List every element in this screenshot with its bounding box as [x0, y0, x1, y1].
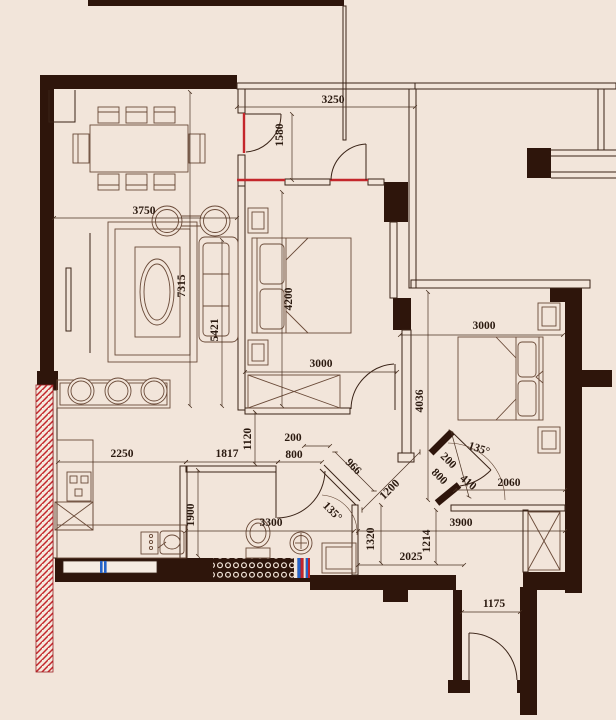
dim-bath-width: 3300 — [260, 517, 283, 529]
radiator — [66, 268, 71, 331]
kitchen-window — [63, 561, 157, 573]
dim-bedroom2-length: 4036 — [414, 389, 426, 412]
bed-2 — [458, 337, 543, 420]
bed-1 — [252, 238, 351, 333]
door-entry — [469, 633, 517, 681]
dim-bath-door: 800 — [285, 449, 303, 461]
dim-bedroom1-width: 3000 — [310, 358, 333, 370]
window-blue-marker — [100, 561, 103, 573]
doors — [245, 114, 517, 681]
bar-stool — [141, 378, 167, 404]
pillow — [518, 342, 536, 377]
dim-bath-angle: 135° — [320, 500, 344, 524]
dim-bath-depth: 1900 — [185, 503, 197, 526]
door-bathroom — [276, 470, 325, 518]
bar-stool — [105, 378, 131, 404]
dim-hall-width: 3250 — [322, 94, 345, 106]
bar-counter — [57, 378, 170, 408]
dim-bottom-width: 3900 — [450, 517, 473, 529]
closet-entry — [528, 512, 560, 570]
dim-living-length: 7315 — [176, 274, 188, 297]
dim-door-jamb: 200 — [438, 451, 459, 472]
dining-set — [73, 107, 205, 190]
dim-hall-depth: 1580 — [274, 123, 286, 146]
tile-band-stripes — [294, 558, 310, 578]
kitchen-sink — [149, 531, 184, 554]
dim-corridor-right: 1214 — [421, 529, 433, 552]
dim-door-angle: 135° — [467, 440, 492, 458]
washbasin — [290, 532, 312, 554]
dim-bedroom1-length: 4200 — [283, 287, 295, 310]
dim-kitchen-width: 2250 — [111, 448, 134, 460]
dim-dining-width: 3750 — [133, 205, 156, 217]
pillow — [518, 381, 536, 416]
floor-plan-page: 3250 1580 3750 7315 5421 4200 3000 3000 … — [0, 0, 616, 720]
red-hatched-wall — [36, 385, 53, 672]
pillow — [260, 244, 284, 284]
dim-bath-jamb: 200 — [284, 432, 302, 444]
dim-living-inner: 5421 — [209, 318, 221, 341]
shower-tray — [322, 543, 356, 573]
dim-corridor-left: 1320 — [365, 527, 377, 550]
bar-stool — [68, 378, 94, 404]
door-bedroom1-living — [351, 364, 395, 410]
dim-diag-wall: 966 — [343, 457, 364, 478]
bedroom1 — [248, 208, 351, 408]
furniture — [55, 107, 560, 573]
dim-diag-passage: 1200 — [378, 477, 403, 502]
wardrobe-bedroom1 — [248, 375, 340, 408]
bathroom-tile-band — [213, 558, 294, 578]
door-bedroom1-hall — [331, 144, 366, 180]
dim-kitchen-to-bath: 1817 — [216, 448, 239, 460]
dim-entry-width: 1175 — [483, 598, 506, 610]
dim-passage: 1120 — [242, 428, 254, 451]
lounge-poufs — [152, 206, 230, 236]
floor-plan-drawing: 3250 1580 3750 7315 5421 4200 3000 3000 … — [0, 0, 616, 720]
pillow — [260, 289, 284, 329]
dim-corridor-width: 2025 — [400, 551, 423, 563]
dim-bedroom2-door: 800 — [429, 467, 450, 488]
dim-closet-width: 2060 — [498, 477, 521, 489]
dining-table — [90, 125, 188, 172]
dim-bedroom2-width: 3000 — [473, 320, 496, 332]
window-blue-marker — [104, 561, 107, 573]
